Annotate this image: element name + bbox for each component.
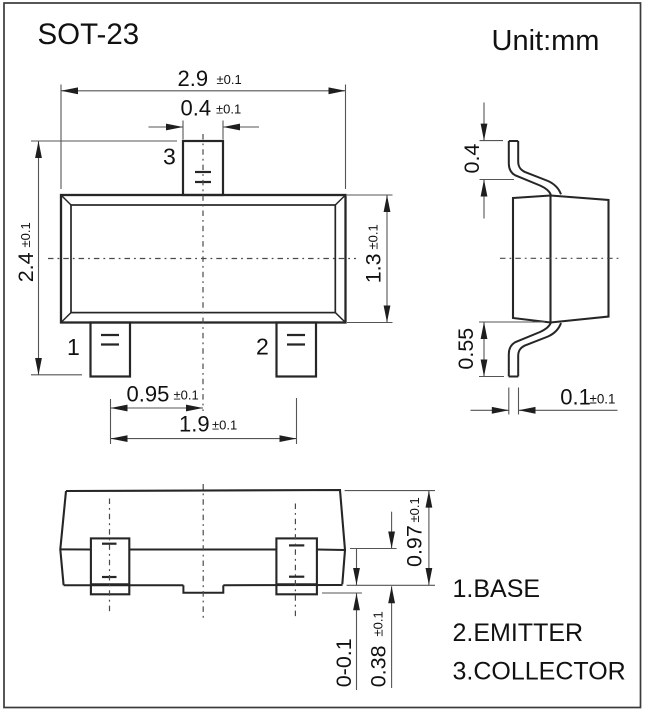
svg-text:Unit:mm: Unit:mm — [492, 25, 600, 57]
svg-text:3.COLLECTOR: 3.COLLECTOR — [453, 657, 626, 685]
svg-text:0-0.1: 0-0.1 — [332, 638, 356, 687]
svg-text:2.9: 2.9 — [178, 66, 209, 91]
svg-text:0.38: 0.38 — [367, 645, 391, 687]
svg-text:±0.1: ±0.1 — [18, 222, 33, 247]
svg-text:±0.1: ±0.1 — [174, 388, 199, 403]
svg-text:0.4: 0.4 — [181, 96, 212, 121]
svg-text:1.BASE: 1.BASE — [453, 575, 541, 603]
svg-text:±0.1: ±0.1 — [217, 72, 242, 87]
svg-text:2.4: 2.4 — [14, 252, 38, 282]
svg-text:1.3: 1.3 — [362, 253, 386, 283]
svg-text:0.55: 0.55 — [454, 328, 478, 370]
svg-text:±0.1: ±0.1 — [371, 611, 386, 636]
svg-text:±0.1: ±0.1 — [590, 392, 616, 407]
svg-text:SOT-23: SOT-23 — [38, 18, 140, 51]
svg-text:2: 2 — [256, 334, 269, 360]
svg-text:2.EMITTER: 2.EMITTER — [453, 619, 584, 647]
svg-text:±0.1: ±0.1 — [212, 418, 237, 433]
svg-text:±0.1: ±0.1 — [407, 497, 422, 522]
svg-text:0.4: 0.4 — [460, 144, 484, 174]
svg-text:±0.1: ±0.1 — [216, 102, 241, 117]
svg-text:±0.1: ±0.1 — [366, 224, 381, 249]
svg-text:0.97: 0.97 — [403, 525, 427, 567]
svg-text:0.95: 0.95 — [127, 382, 170, 407]
svg-text:3: 3 — [163, 144, 176, 170]
svg-text:1.9: 1.9 — [179, 412, 210, 437]
svg-text:0.1: 0.1 — [560, 384, 591, 409]
svg-text:1: 1 — [67, 334, 80, 360]
